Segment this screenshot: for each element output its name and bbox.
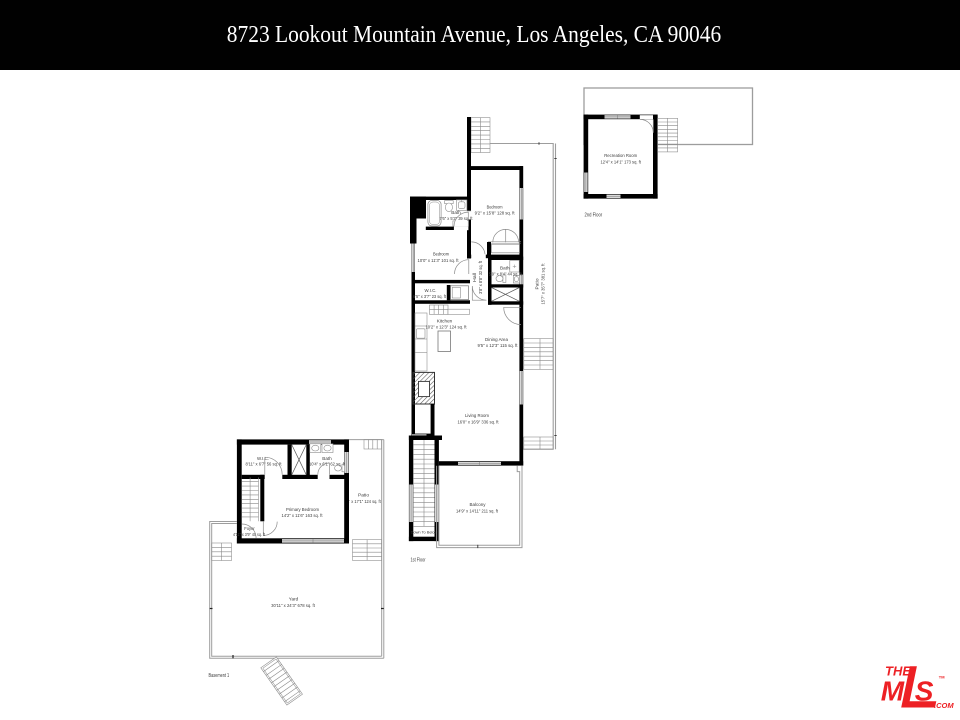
svg-text:4'11" x 3'9" 45 sq. ft: 4'11" x 3'9" 45 sq. ft xyxy=(233,532,266,537)
svg-text:Yard: Yard xyxy=(289,597,299,603)
svg-text:Hall: Hall xyxy=(472,273,477,282)
svg-text:30'11" x 24'3" 678 sq. ft: 30'11" x 24'3" 678 sq. ft xyxy=(271,603,315,608)
svg-text:10'2" x 12'3" 124 sq. ft: 10'2" x 12'3" 124 sq. ft xyxy=(426,325,468,330)
svg-text:9'2" x 15'8" 128 sq. ft: 9'2" x 15'8" 128 sq. ft xyxy=(475,210,516,215)
svg-text:Bedroom: Bedroom xyxy=(433,252,449,258)
svg-text:W.I.C.: W.I.C. xyxy=(425,288,437,293)
svg-text:Bath: Bath xyxy=(500,266,510,271)
svg-text:14'9" x 14'11" 211 sq. ft: 14'9" x 14'11" 211 sq. ft xyxy=(456,508,499,513)
svg-text:7'6" x 5'2" 39 sq. ft: 7'6" x 5'2" 39 sq. ft xyxy=(440,216,474,221)
svg-text:10'4" x 6'1" 62 sq. ft: 10'4" x 6'1" 62 sq. ft xyxy=(309,462,346,467)
svg-text:Primary Bedroom: Primary Bedroom xyxy=(286,507,319,513)
svg-text:Living Room: Living Room xyxy=(465,413,489,419)
svg-text:5'9" x 8'4" 44 sq. ft: 5'9" x 8'4" 44 sq. ft xyxy=(489,272,523,277)
svg-text:S: S xyxy=(915,676,934,707)
svg-text:10'0" x 11'3" 101 sq. ft: 10'0" x 11'3" 101 sq. ft xyxy=(418,258,460,263)
svg-text:16'0" x 16'9" 336 sq. ft: 16'0" x 16'9" 336 sq. ft xyxy=(458,419,500,424)
svg-text:11' x 17'1" 124 sq. ft: 11' x 17'1" 124 sq. ft xyxy=(345,499,381,504)
svg-text:Bath: Bath xyxy=(451,210,461,215)
svg-text:Basement 1: Basement 1 xyxy=(209,673,230,679)
svg-text:12'4" x 14'1" 173 sq. ft: 12'4" x 14'1" 173 sq. ft xyxy=(600,160,641,165)
svg-text:.COM: .COM xyxy=(934,701,954,710)
svg-text:2nd Floor: 2nd Floor xyxy=(585,213,603,219)
svg-text:9'5" x 12'3" 115 sq. ft: 9'5" x 12'3" 115 sq. ft xyxy=(478,343,519,348)
svg-text:M: M xyxy=(881,675,905,706)
svg-text:Patio: Patio xyxy=(358,493,369,498)
svg-text:Kitchen: Kitchen xyxy=(437,318,453,324)
svg-text:6'5" x 3'7" 23 sq. ft: 6'5" x 3'7" 23 sq. ft xyxy=(413,294,447,299)
svg-text:15'7" x 35'7" 381 sq. ft: 15'7" x 35'7" 381 sq. ft xyxy=(540,263,545,305)
svg-text:Down To Below: Down To Below xyxy=(411,529,438,534)
svg-text:Recreation Room: Recreation Room xyxy=(604,153,637,159)
svg-text:Bath: Bath xyxy=(322,456,332,461)
svg-text:TM: TM xyxy=(939,675,945,680)
svg-text:Dining Area: Dining Area xyxy=(485,337,508,343)
svg-text:Balcony: Balcony xyxy=(470,502,487,508)
svg-text:W.I.C.: W.I.C. xyxy=(257,456,269,461)
svg-text:14'2" x 11'6" 163 sq. ft: 14'2" x 11'6" 163 sq. ft xyxy=(282,513,324,518)
svg-text:Bedroom: Bedroom xyxy=(487,204,503,210)
svg-text:1st Floor: 1st Floor xyxy=(411,558,426,564)
svg-text:3'8" x 8'8" 32 sq. ft: 3'8" x 8'8" 32 sq. ft xyxy=(478,260,483,294)
svg-text:Patio: Patio xyxy=(535,278,540,289)
